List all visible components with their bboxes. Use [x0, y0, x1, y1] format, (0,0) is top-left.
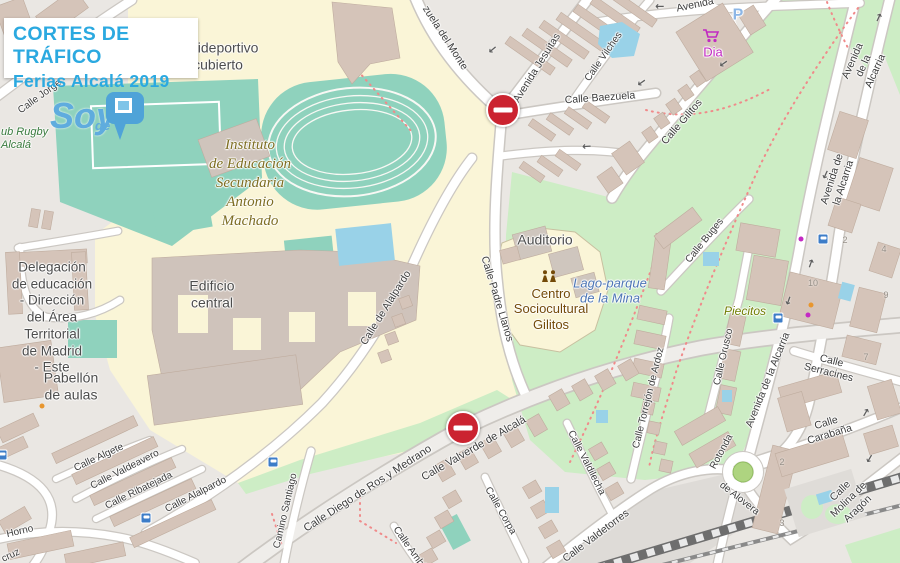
- swimming-pool: [335, 223, 395, 266]
- house-number: 9: [883, 290, 888, 300]
- poi-dot-icon: [40, 404, 45, 409]
- one-way-arrow-icon: →: [655, 0, 664, 13]
- bus-stop-icon: [818, 234, 829, 245]
- poi-dot-icon: [809, 303, 814, 308]
- bus-stop-icon: [773, 313, 784, 324]
- house-number: 4: [881, 244, 886, 254]
- title-box: CORTES DE TRÁFICO Ferias Alcalá 2019: [4, 18, 198, 78]
- supermarket-cart-icon: [702, 29, 720, 44]
- map-viewport[interactable]: Polideportivo cubierto Instituto de Educ…: [0, 0, 900, 563]
- title-line-2: Ferias Alcalá 2019: [13, 71, 198, 92]
- bus-stop-icon: [0, 450, 8, 461]
- house-number: 2: [779, 457, 784, 467]
- house-number: 10: [808, 278, 818, 288]
- one-way-arrow-icon: →: [582, 140, 592, 154]
- house-number: 7: [863, 352, 868, 362]
- shop-dot-icon: [806, 313, 811, 318]
- house-number: 2: [842, 235, 847, 245]
- roundabout-alovera: [723, 452, 763, 492]
- speech-bubble-icon: [104, 90, 148, 142]
- bus-stop-icon: [141, 513, 152, 524]
- no-entry-sign: [486, 93, 520, 127]
- title-line-1: CORTES DE TRÁFICO: [13, 23, 198, 69]
- bus-stop-icon: [268, 457, 279, 468]
- community-centre-icon: [540, 270, 558, 282]
- house-number: 3: [779, 518, 784, 528]
- no-entry-sign: [446, 411, 480, 445]
- shop-dot-icon: [799, 237, 804, 242]
